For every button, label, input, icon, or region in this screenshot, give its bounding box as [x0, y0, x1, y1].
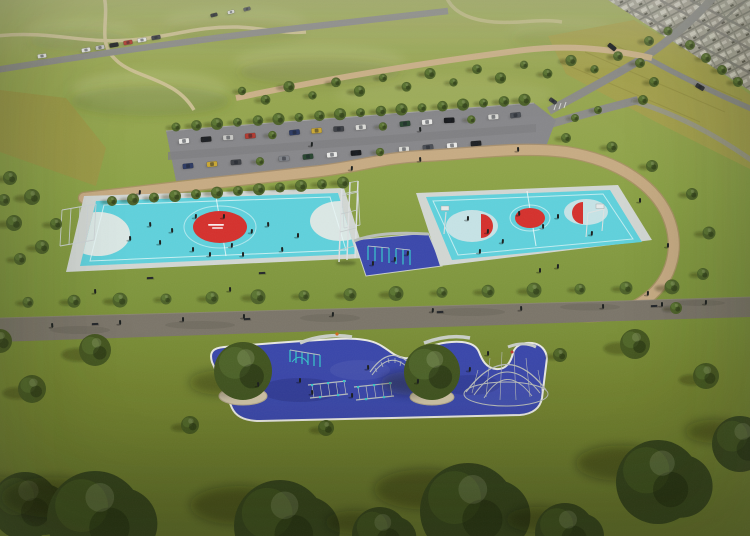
park-render: Aerial 3D rendering of a community sport…: [0, 0, 750, 536]
grass-grain-texture: [0, 0, 750, 536]
park-render-canvas: Aerial 3D rendering of a community sport…: [0, 0, 750, 536]
